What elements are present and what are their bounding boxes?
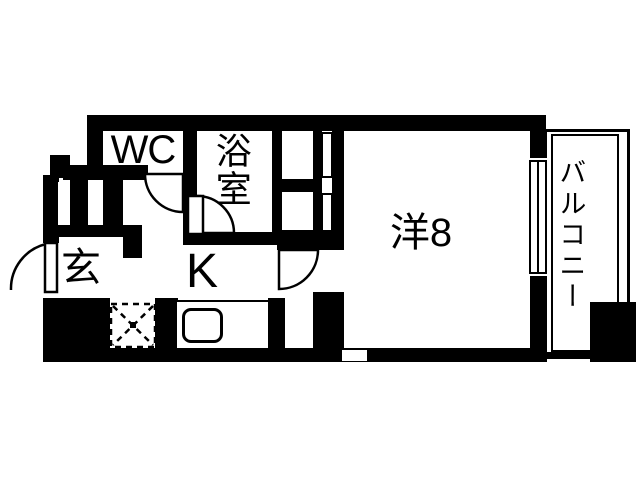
entrance-door-arc — [11, 244, 46, 290]
bath-door-leaf — [188, 196, 203, 234]
western-room-door-arc — [279, 250, 318, 289]
room-label-western: 洋8 — [371, 212, 471, 254]
room-label-balcony: バルコニー — [556, 158, 584, 313]
door-swings — [0, 0, 640, 480]
wc-door-arc — [145, 174, 183, 212]
floor-plan: WC 浴室 洋8 玄 K バルコニー — [0, 0, 640, 480]
room-label-entrance: 玄 — [56, 247, 106, 289]
room-label-kitchen: K — [174, 247, 230, 297]
room-label-bath: 浴室 — [212, 132, 250, 208]
room-label-wc: WC — [102, 129, 184, 171]
